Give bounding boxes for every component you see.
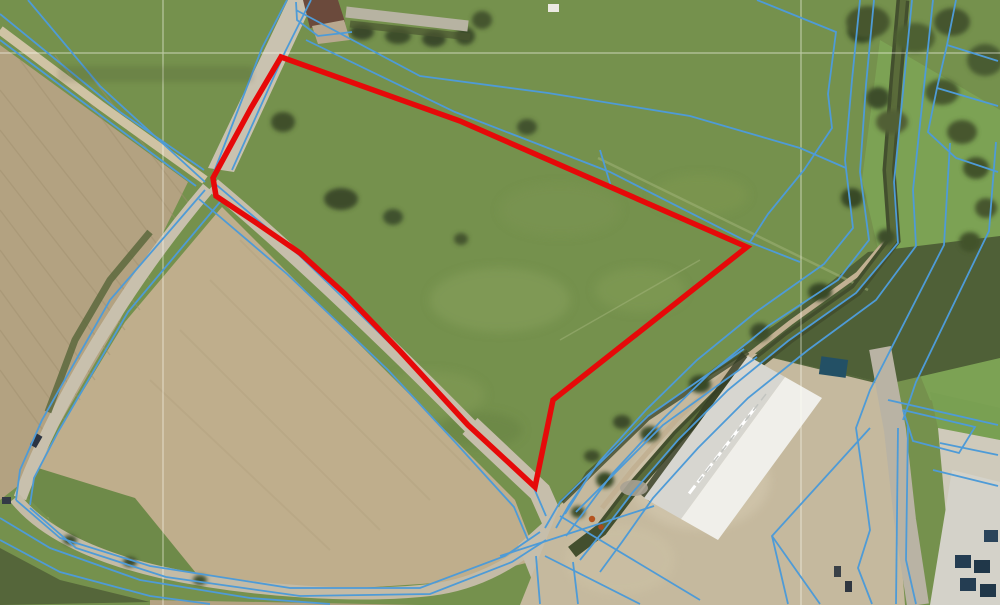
aerial-map-canvas[interactable] (0, 0, 1000, 605)
map-svg (0, 0, 1000, 605)
